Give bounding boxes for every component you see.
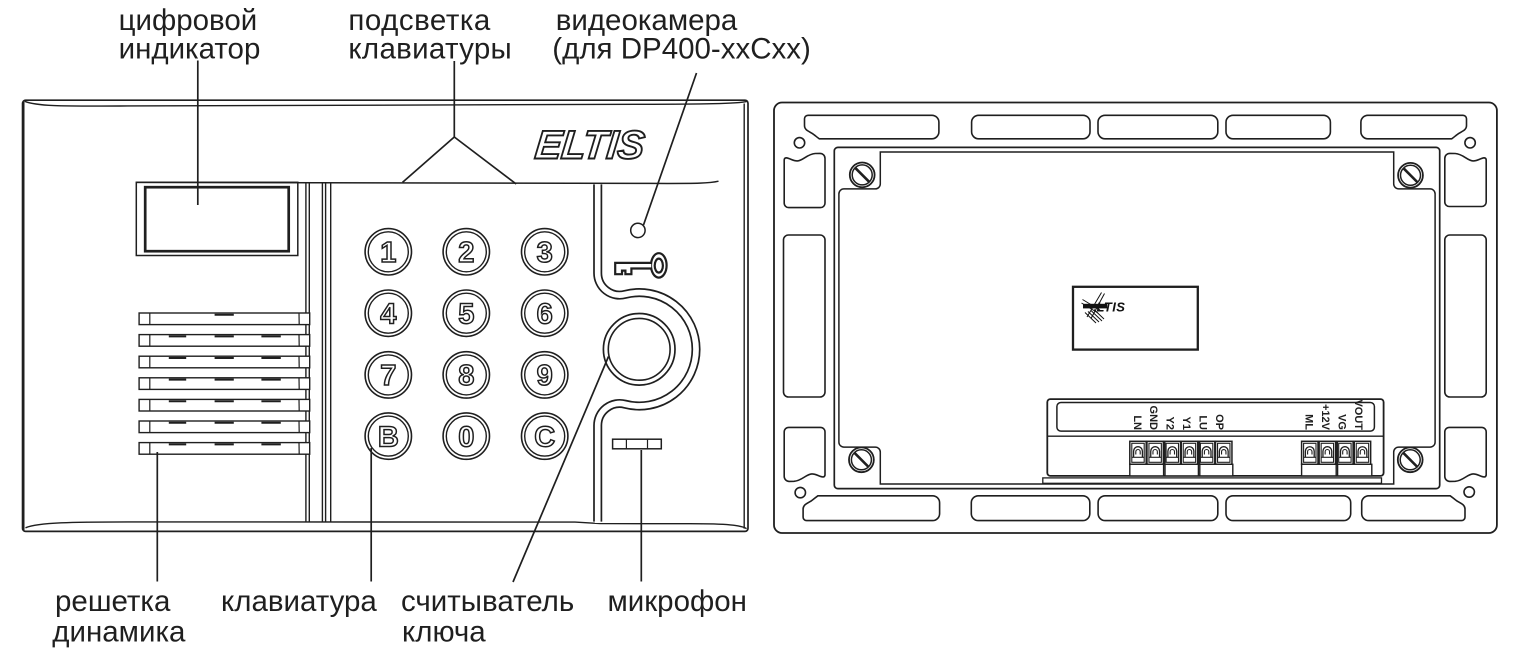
svg-text:клавиатуры: клавиатуры [348,32,512,65]
svg-text:3: 3 [537,237,553,269]
svg-text:VG: VG [1335,414,1347,430]
svg-text:Y2: Y2 [1164,417,1176,430]
svg-text:GND: GND [1147,406,1159,431]
svg-text:C: C [534,421,555,453]
svg-text:6: 6 [537,298,553,330]
svg-text:1: 1 [380,237,396,269]
svg-text:LN: LN [1131,415,1143,430]
svg-text:9: 9 [537,360,553,392]
svg-text:LU: LU [1196,415,1208,430]
svg-text:ML: ML [1303,414,1315,430]
svg-text:динамика: динамика [52,616,186,649]
svg-text:LTIS: LTIS [1097,300,1126,315]
svg-text:индикатор: индикатор [119,32,261,65]
svg-text:Y1: Y1 [1180,417,1192,430]
svg-text:считыватель: считыватель [401,585,574,618]
svg-text:решетка: решетка [55,585,171,618]
svg-text:2: 2 [458,237,474,269]
svg-text:ключа: ключа [402,616,486,649]
svg-text:микрофон: микрофон [608,585,747,618]
svg-text:8: 8 [458,360,474,392]
svg-text:VOUT: VOUT [1352,399,1364,430]
svg-text:+12V: +12V [1319,404,1331,431]
svg-text:OP: OP [1213,414,1225,430]
svg-text:B: B [378,421,399,453]
svg-text:5: 5 [458,298,474,330]
svg-text:0: 0 [458,421,474,453]
svg-text:4: 4 [380,298,396,330]
svg-text:(для DP400-xxCxx): (для DP400-xxCxx) [552,32,811,65]
svg-text:клавиатура: клавиатура [221,585,377,618]
svg-text:ELTIS: ELTIS [533,123,647,167]
svg-text:7: 7 [380,360,396,392]
